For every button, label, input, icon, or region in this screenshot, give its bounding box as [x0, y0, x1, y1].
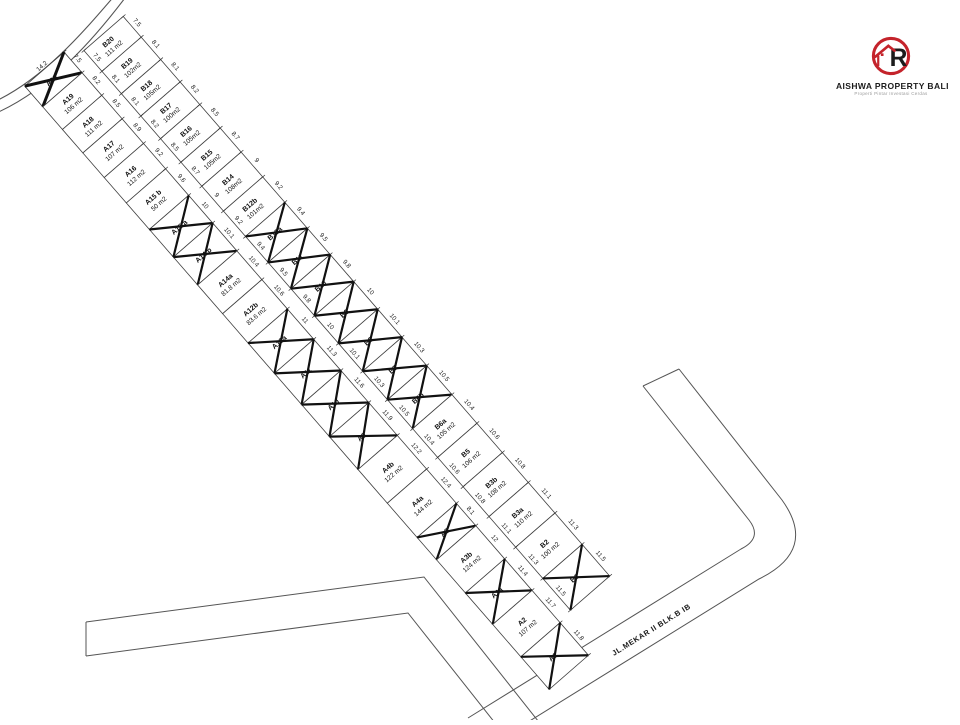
- row-B: 7.57.514.2B20111 m28.18.1B19102m28.18.1B…: [82, 10, 617, 612]
- plot-strips: 7.514.2A208.2A19106 m28.5A18111 m28.9A17…: [20, 0, 647, 689]
- company-tagline: Properti Pintar Investasi Cerdas: [836, 92, 946, 97]
- dimension-label: 11: [300, 316, 310, 326]
- dimension-label: 9: [253, 157, 261, 165]
- company-logo-mark: R: [869, 34, 913, 78]
- logo-house-window: [881, 53, 884, 56]
- dimension-label: 10: [365, 287, 375, 297]
- dimension-label: 10: [200, 201, 210, 211]
- road-label: JL.MEKAR II BLK.B IB: [610, 602, 692, 658]
- site-plan-drawing: JL.MEKAR II BLK.B IB 7.514.2A208.2A19106…: [0, 0, 960, 720]
- dimension-label: 12: [489, 534, 499, 544]
- site-plan-canvas: JL.MEKAR II BLK.B IB 7.514.2A208.2A19106…: [0, 0, 960, 720]
- company-logo: R AISHWA PROPERTY BALI Properti Pintar I…: [836, 34, 946, 97]
- company-name: AISHWA PROPERTY BALI: [836, 82, 946, 91]
